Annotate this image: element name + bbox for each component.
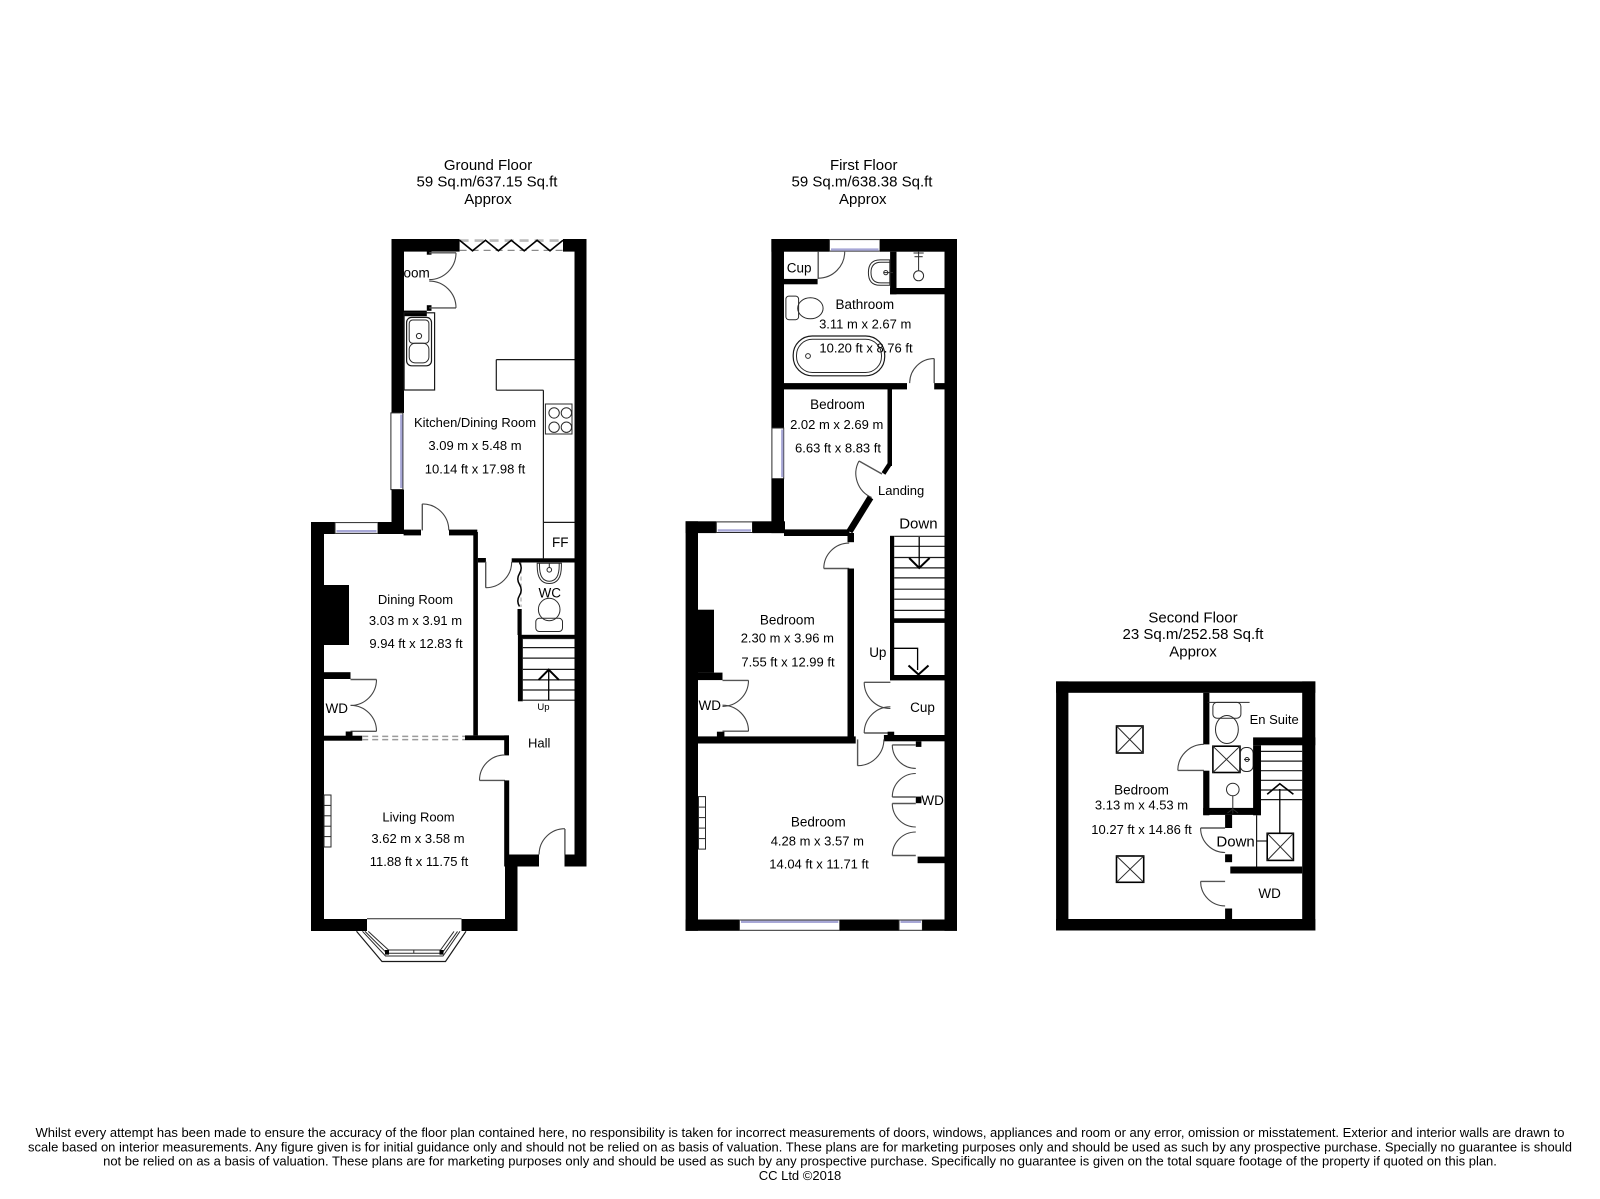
svg-text:14.04 ft x 11.71 ft: 14.04 ft x 11.71 ft bbox=[769, 857, 869, 872]
svg-text:7.55 ft x 12.99 ft: 7.55 ft x 12.99 ft bbox=[741, 655, 835, 670]
svg-text:Up: Up bbox=[537, 702, 549, 713]
svg-text:59 Sq.m/638.38 Sq.ft: 59 Sq.m/638.38 Sq.ft bbox=[792, 174, 934, 191]
svg-text:2.02 m x 2.69 m: 2.02 m x 2.69 m bbox=[790, 417, 883, 432]
svg-text:4.28 m x 3.57 m: 4.28 m x 3.57 m bbox=[771, 833, 864, 848]
svg-text:Approx: Approx bbox=[839, 191, 887, 208]
svg-text:2.30 m x 3.96 m: 2.30 m x 3.96 m bbox=[741, 631, 834, 646]
svg-text:Bedroom: Bedroom bbox=[810, 397, 865, 412]
svg-text:scale based on interior measur: scale based on interior measurements. An… bbox=[28, 1140, 1572, 1155]
svg-text:Hall: Hall bbox=[528, 736, 551, 751]
svg-text:WD: WD bbox=[699, 698, 722, 713]
svg-text:WD: WD bbox=[1258, 886, 1281, 901]
svg-text:10.27 ft x 14.86 ft: 10.27 ft x 14.86 ft bbox=[1091, 822, 1192, 837]
svg-text:Bathroom: Bathroom bbox=[836, 297, 895, 312]
svg-text:FF: FF bbox=[552, 535, 569, 550]
svg-text:Second Floor: Second Floor bbox=[1148, 610, 1237, 627]
svg-text:WD: WD bbox=[326, 701, 349, 716]
svg-text:3.62 m x 3.58 m: 3.62 m x 3.58 m bbox=[371, 831, 464, 846]
svg-text:10.20 ft x 8.76 ft: 10.20 ft x 8.76 ft bbox=[819, 340, 913, 355]
svg-text:10.14 ft x 17.98 ft: 10.14 ft x 17.98 ft bbox=[425, 462, 526, 477]
svg-text:6.63 ft x 8.83 ft: 6.63 ft x 8.83 ft bbox=[795, 441, 881, 456]
svg-text:Up: Up bbox=[869, 645, 886, 660]
svg-text:3.11 m x 2.67 m: 3.11 m x 2.67 m bbox=[819, 317, 911, 332]
svg-text:Dining Room: Dining Room bbox=[378, 592, 453, 607]
svg-text:Whilst every attempt has been: Whilst every attempt has been made to en… bbox=[36, 1125, 1565, 1140]
svg-text:Ground Floor: Ground Floor bbox=[444, 157, 532, 174]
svg-text:Kitchen/Dining Room: Kitchen/Dining Room bbox=[414, 415, 536, 430]
svg-text:Down: Down bbox=[899, 515, 937, 532]
svg-text:oom: oom bbox=[404, 265, 430, 280]
svg-text:En Suite: En Suite bbox=[1250, 712, 1299, 727]
svg-text:59 Sq.m/637.15 Sq.ft: 59 Sq.m/637.15 Sq.ft bbox=[417, 174, 559, 191]
svg-text:Cup: Cup bbox=[910, 700, 935, 715]
svg-text:23 Sq.m/252.58 Sq.ft: 23 Sq.m/252.58 Sq.ft bbox=[1123, 626, 1265, 643]
svg-text:Bedroom: Bedroom bbox=[1114, 783, 1169, 798]
svg-text:Bedroom: Bedroom bbox=[791, 815, 846, 830]
svg-text:3.13 m x 4.53 m: 3.13 m x 4.53 m bbox=[1095, 798, 1188, 813]
svg-text:Living Room: Living Room bbox=[382, 810, 454, 825]
svg-text:3.09 m x 5.48 m: 3.09 m x 5.48 m bbox=[428, 438, 521, 453]
svg-text:9.94 ft x 12.83 ft: 9.94 ft x 12.83 ft bbox=[369, 636, 463, 651]
svg-text:WD: WD bbox=[921, 793, 944, 808]
svg-text:Bedroom: Bedroom bbox=[760, 613, 815, 628]
svg-text:Landing: Landing bbox=[878, 483, 924, 498]
svg-text:Cup: Cup bbox=[787, 261, 812, 276]
svg-text:Approx: Approx bbox=[464, 191, 512, 208]
svg-text:Approx: Approx bbox=[1169, 644, 1217, 661]
svg-text:3.03 m x 3.91 m: 3.03 m x 3.91 m bbox=[369, 613, 462, 628]
svg-text:CC Ltd ©2018: CC Ltd ©2018 bbox=[759, 1168, 842, 1183]
svg-text:11.88 ft x 11.75 ft: 11.88 ft x 11.75 ft bbox=[370, 854, 469, 869]
svg-text:Down: Down bbox=[1216, 833, 1254, 850]
svg-text:First Floor: First Floor bbox=[830, 157, 898, 174]
svg-text:not be relied on as a basis of: not be relied on as a basis of valuation… bbox=[103, 1154, 1497, 1169]
